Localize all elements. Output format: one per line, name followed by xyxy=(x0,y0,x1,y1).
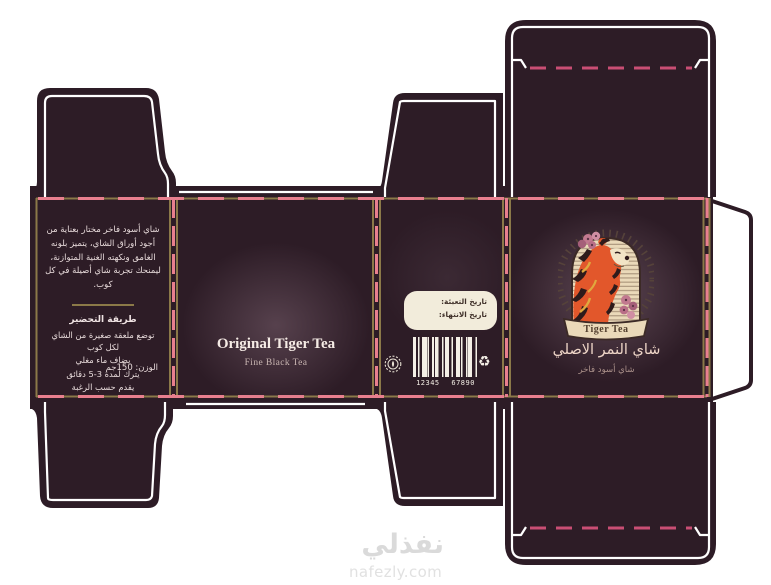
panel-description: شاي أسود فاخر مختار بعناية من أجود أوراق… xyxy=(36,198,170,397)
product-title-en: Original Tiger Tea xyxy=(176,336,376,353)
tiger-logo: Tiger Tea xyxy=(558,224,654,350)
prep-step: يقدم حسب الرغبة xyxy=(45,382,161,393)
barcode-bars xyxy=(413,337,478,377)
preparation-title: طريقة التحضير xyxy=(45,315,161,325)
date-label-box: تاريخ التعبئة: تاريخ الانتهاء: xyxy=(404,291,497,330)
gold-divider xyxy=(72,304,134,307)
recycle-icon: ♻ xyxy=(478,355,491,369)
expiry-date-label: تاريخ الانتهاء: xyxy=(412,311,487,318)
packaging-dieline: شاي أسود فاخر مختار بعناية من أجود أوراق… xyxy=(0,0,771,585)
flap-top-tuck xyxy=(505,20,716,197)
certification-stamp-icon xyxy=(384,355,402,373)
logo-banner-text: Tiger Tea xyxy=(584,324,629,335)
panel-front: Tiger Tea شاي النمر الاصلي شاي أسود فاخر xyxy=(506,198,707,397)
fill-date-label: تاريخ التعبئة: xyxy=(412,298,487,305)
brand-subtitle-arabic: شاي أسود فاخر xyxy=(506,365,707,375)
description-paragraph: شاي أسود فاخر مختار بعناية من أجود أوراق… xyxy=(45,224,161,293)
barcode-number: 12345 67890 xyxy=(413,379,478,387)
panel-info: تاريخ التعبئة: تاريخ الانتهاء: 12345 678… xyxy=(376,198,506,397)
brand-name-arabic: شاي النمر الاصلي xyxy=(506,342,707,358)
side-tab xyxy=(712,201,751,399)
net-weight: الوزن: 150جم xyxy=(106,363,158,373)
watermark-logo: نفذلي xyxy=(399,530,444,560)
panel-back: Original Tiger Tea Fine Black Tea xyxy=(176,198,376,397)
watermark-domain: nafezly.com xyxy=(349,563,442,581)
flap-top-left xyxy=(32,88,176,197)
prep-step: توضع ملعقة صغيرة من الشاي لكل كوب xyxy=(45,330,161,353)
tiger-logo-art: Tiger Tea xyxy=(558,224,654,346)
barcode: 12345 67890 xyxy=(413,337,478,387)
flap-bottom-middle xyxy=(377,402,503,506)
flap-top-middle xyxy=(377,93,503,197)
flap-bottom-tuck xyxy=(505,402,716,565)
product-subtitle-en: Fine Black Tea xyxy=(176,358,376,368)
